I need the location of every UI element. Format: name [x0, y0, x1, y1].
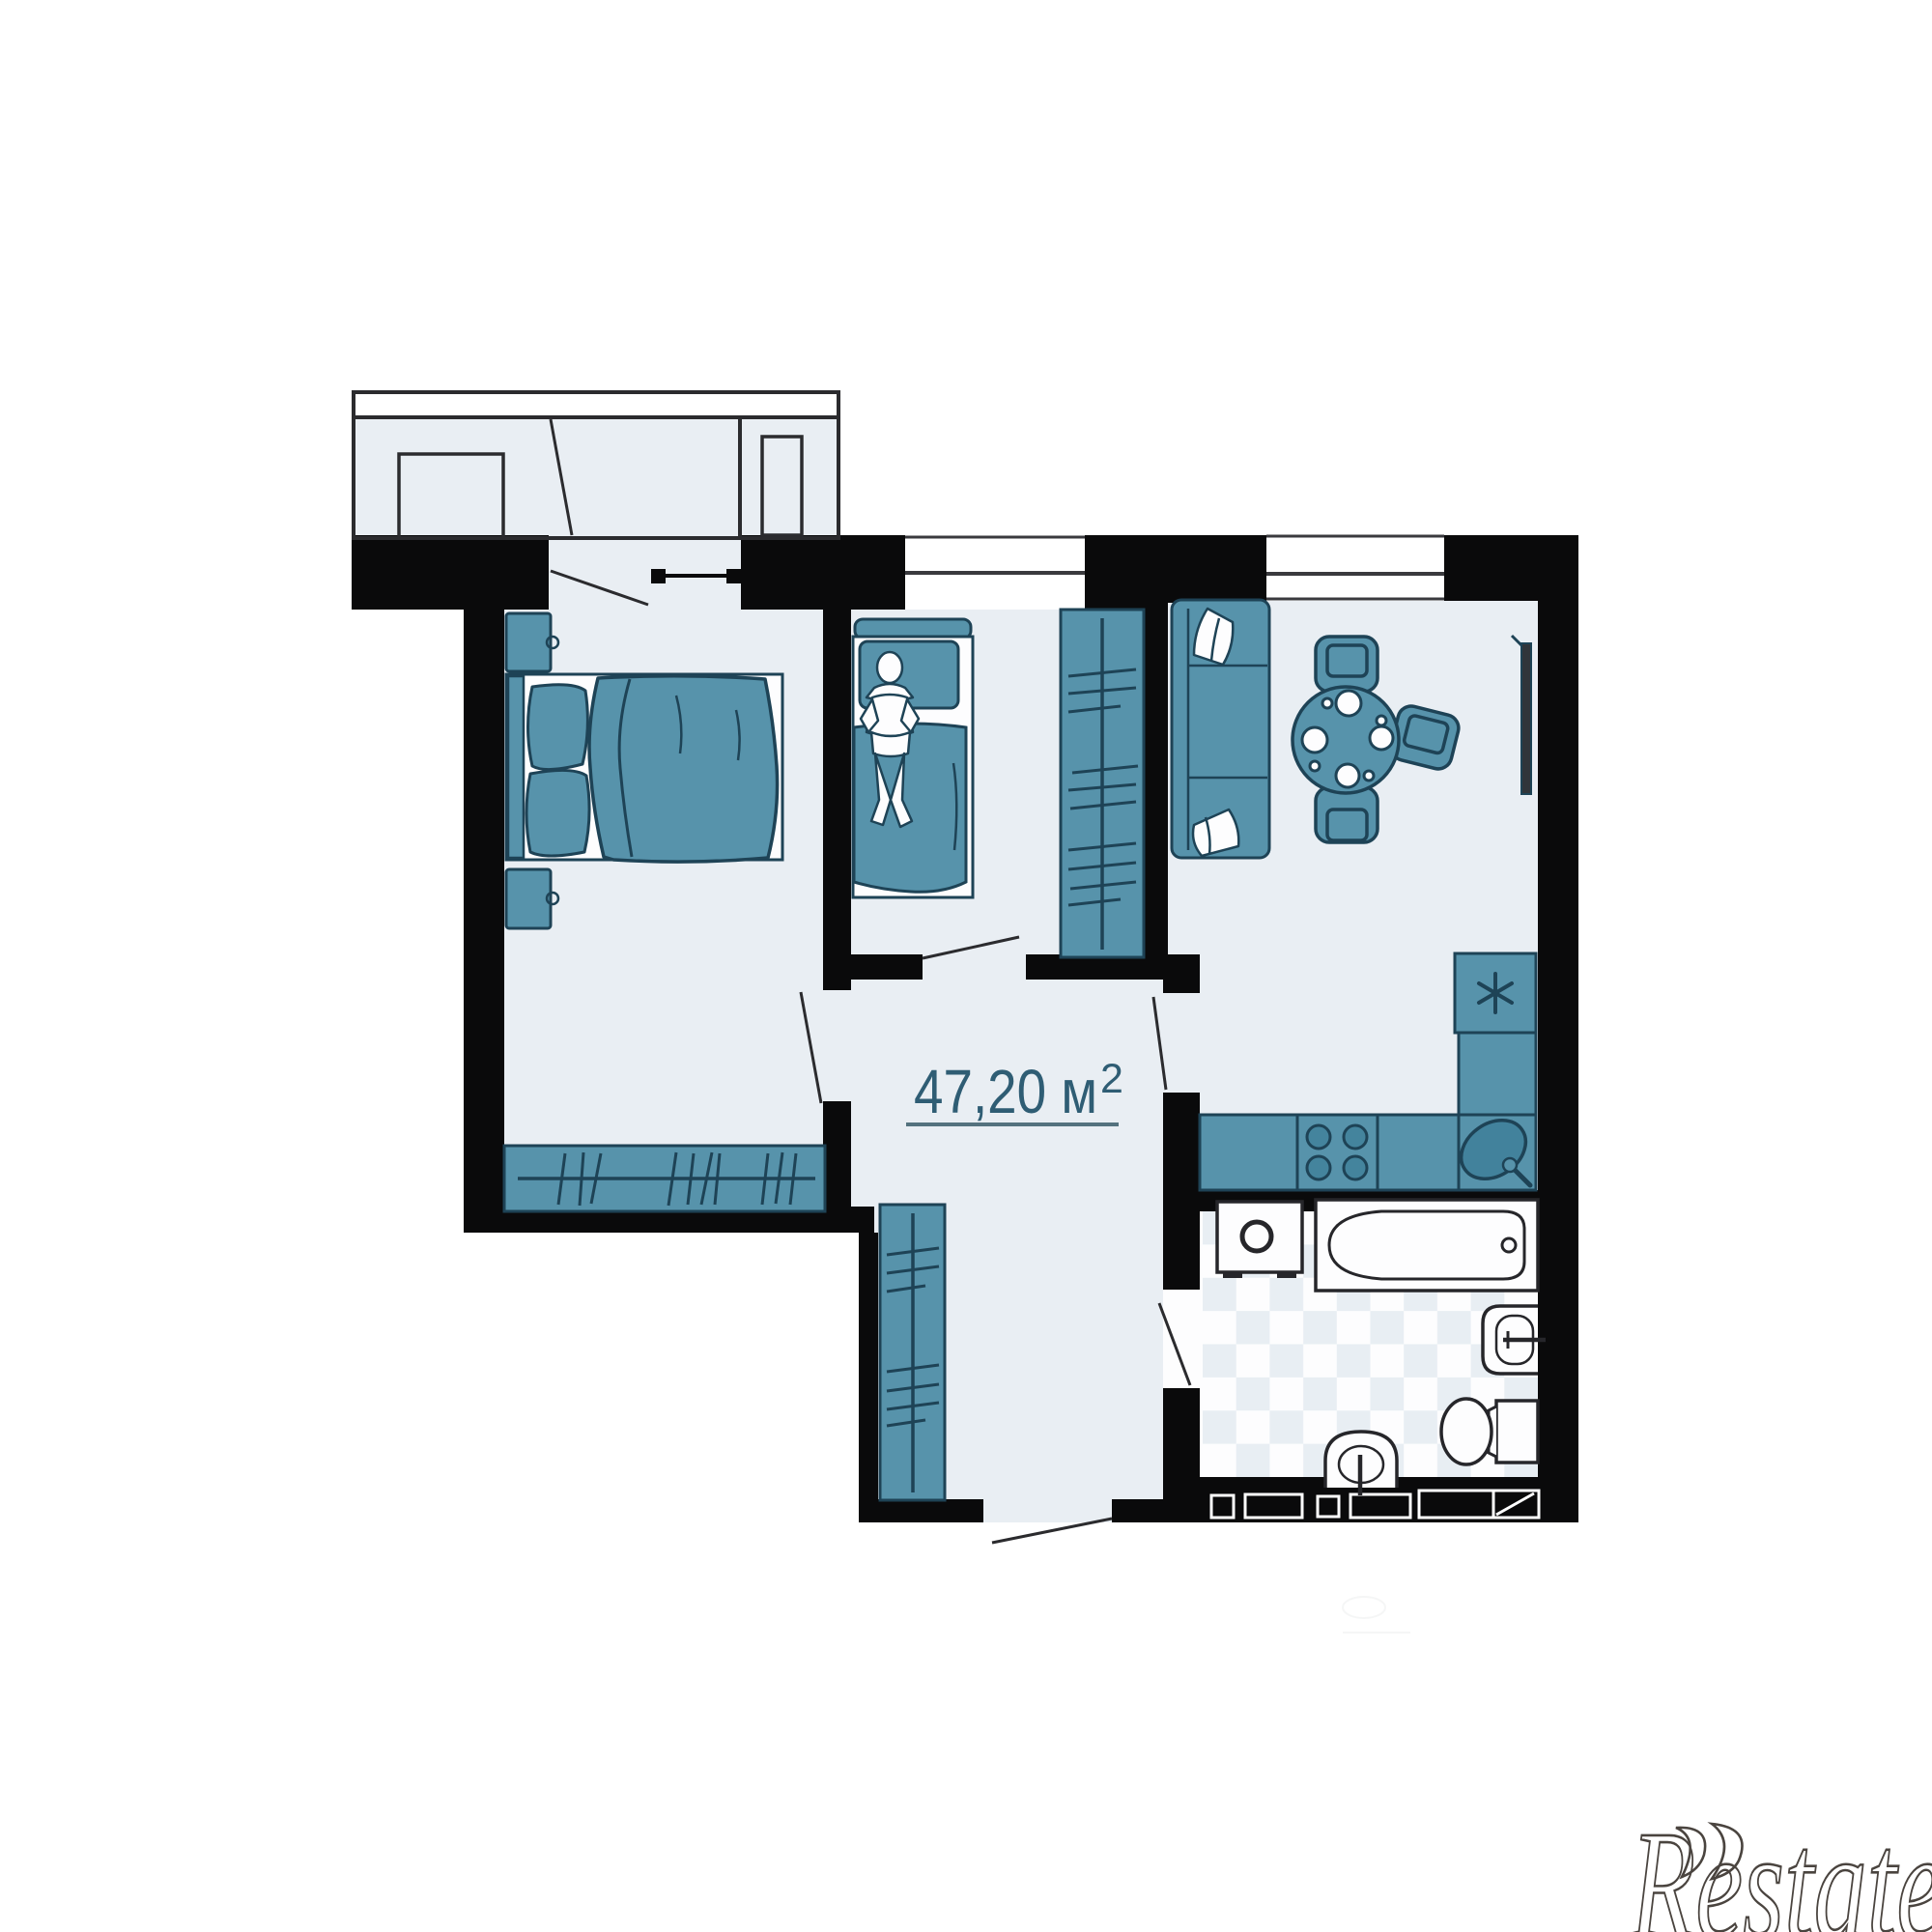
- svg-text:47,20 м: 47,20 м: [914, 1057, 1097, 1126]
- svg-text:Restate: Restate: [1630, 1799, 1932, 1932]
- svg-text:2: 2: [1100, 1056, 1123, 1102]
